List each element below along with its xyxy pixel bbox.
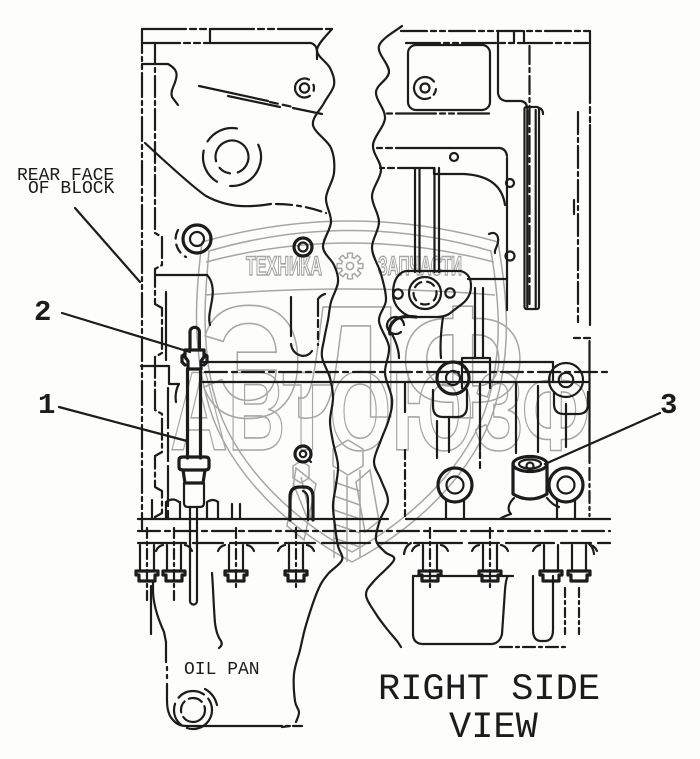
svg-text:OIL PAN: OIL PAN (184, 660, 260, 680)
svg-text:1: 1 (38, 389, 55, 422)
svg-text:2: 2 (34, 296, 51, 329)
svg-text:VIEW: VIEW (449, 707, 539, 749)
svg-text:3: 3 (660, 389, 677, 422)
svg-text:RIGHT SIDE: RIGHT SIDE (378, 669, 600, 711)
svg-text:OF BLOCK: OF BLOCK (28, 179, 115, 199)
